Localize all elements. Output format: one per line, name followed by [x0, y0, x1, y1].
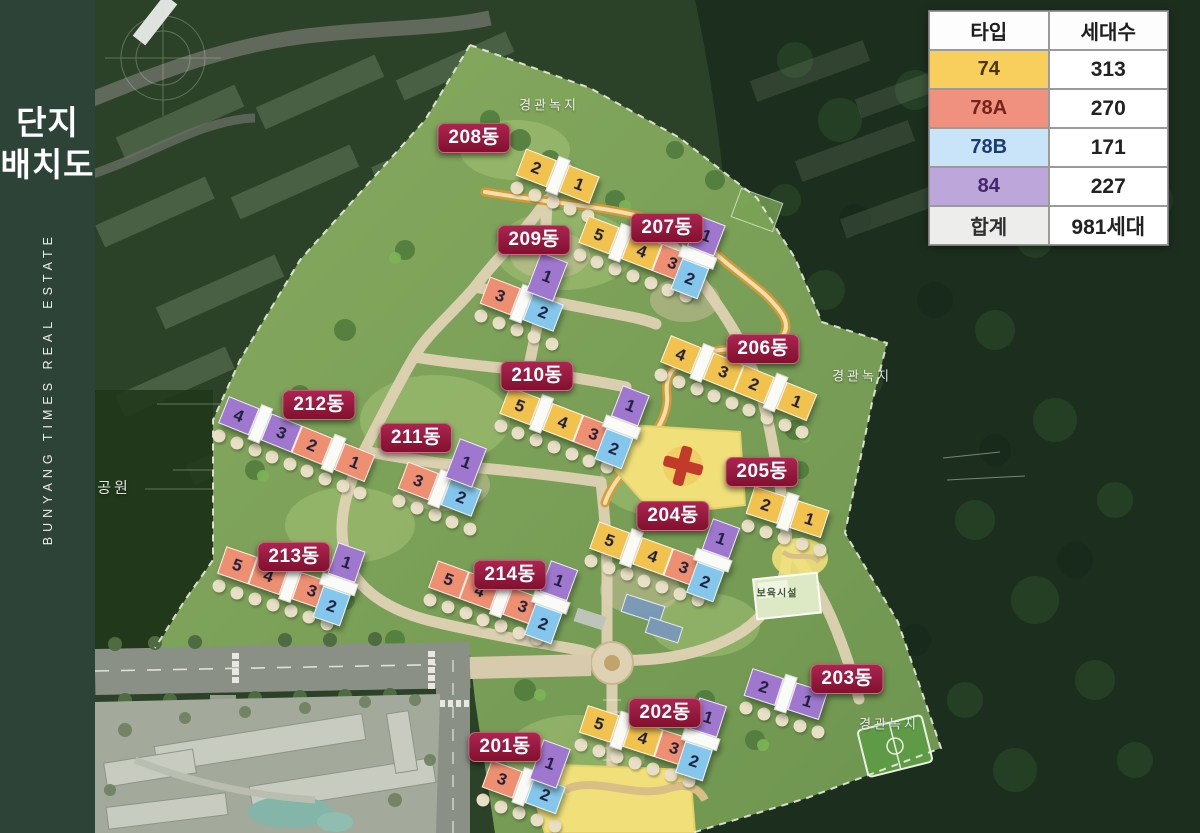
building-badge-206동: 206동 [726, 334, 799, 364]
tree [283, 458, 296, 471]
legend-count-cell: 270 [1049, 89, 1169, 128]
tree [814, 543, 827, 556]
tree [812, 725, 825, 738]
tree [494, 420, 507, 433]
tree [495, 800, 508, 813]
tree [620, 568, 633, 581]
tree [530, 813, 543, 826]
tree [284, 605, 297, 618]
area-label: 경관녹지 [832, 366, 892, 385]
tree [528, 189, 541, 202]
building-badge-213동: 213동 [257, 542, 330, 572]
tree [739, 702, 752, 715]
tree [778, 418, 791, 431]
tree [464, 522, 477, 535]
tree [492, 317, 505, 330]
tree [672, 376, 685, 389]
tree [266, 598, 279, 611]
tree [644, 276, 657, 289]
tree [248, 592, 261, 605]
legend-type-cell: 74 [929, 50, 1049, 89]
tree [428, 509, 441, 522]
building-badge-210동: 210동 [500, 361, 573, 391]
tree [230, 437, 243, 450]
area-label: 경관녹지 [859, 714, 919, 733]
tree [546, 196, 559, 209]
legend-header-count: 세대수 [1049, 11, 1169, 50]
tree [230, 586, 243, 599]
tree [629, 756, 642, 769]
legend-table-header: 타입 세대수 [929, 11, 1168, 50]
legend-row-합계: 합계981세대 [929, 206, 1168, 245]
area-label: 보육시설 [757, 585, 798, 600]
tree [796, 425, 809, 438]
tree [248, 444, 261, 457]
building-badge-203동: 203동 [810, 664, 883, 694]
tree [593, 745, 606, 758]
tree [743, 404, 756, 417]
building-badge-202동: 202동 [628, 698, 701, 728]
tree [564, 202, 577, 215]
legend-count-cell: 981세대 [1049, 206, 1169, 245]
tree [410, 502, 423, 515]
tree [336, 479, 349, 492]
building-badge-211동: 211동 [380, 423, 452, 453]
building-badge-204동: 204동 [636, 501, 709, 531]
sidebar: 단지 배치도 BUNYANG TIMES REAL ESTATE [0, 0, 95, 833]
area-label: 경관녹지 [519, 95, 579, 114]
legend-type-cell: 78B [929, 128, 1049, 167]
legend-count-cell: 227 [1049, 167, 1169, 206]
tree [656, 581, 669, 594]
legend-type-cell: 84 [929, 167, 1049, 206]
tree [301, 465, 314, 478]
tree [530, 434, 543, 447]
legend-header-type: 타입 [929, 11, 1049, 50]
tree [708, 390, 721, 403]
tree [565, 447, 578, 460]
page-title-line2: 배치도 [0, 146, 94, 183]
tree [690, 383, 703, 396]
legend-count-cell: 171 [1049, 128, 1169, 167]
tree [609, 263, 622, 276]
legend-row-74: 74313 [929, 50, 1168, 89]
tree [777, 532, 790, 545]
page-title-line1: 단지 [16, 104, 79, 141]
tree [354, 486, 367, 499]
legend-count-cell: 313 [1049, 50, 1169, 89]
legend-row-78A: 78A270 [929, 89, 1168, 128]
tree [319, 472, 332, 485]
brand-vertical-text: BUNYANG TIMES REAL ESTATE [41, 232, 55, 545]
building-badge-209동: 209동 [497, 225, 570, 255]
tree [513, 807, 526, 820]
tree [795, 538, 808, 551]
tree [674, 587, 687, 600]
tree [793, 720, 806, 733]
page-title: 단지 배치도 [0, 102, 95, 186]
tree [602, 561, 615, 574]
tree [626, 269, 639, 282]
tree [213, 429, 226, 442]
tree [266, 451, 279, 464]
tree [655, 368, 668, 381]
tree [528, 330, 541, 343]
tree [512, 427, 525, 440]
tree [759, 526, 772, 539]
tree [761, 411, 774, 424]
tree [511, 182, 524, 195]
tree [638, 574, 651, 587]
tree [757, 708, 770, 721]
tree [441, 600, 454, 613]
tree [573, 249, 586, 262]
area-label: 공원 [97, 477, 131, 498]
tree [591, 256, 604, 269]
tree [212, 580, 225, 593]
tree [547, 440, 560, 453]
tree [546, 337, 559, 350]
legend-table: 타입 세대수 7431378A27078B17184227합계981세대 [928, 10, 1169, 246]
tree [611, 751, 624, 764]
tree [584, 555, 597, 568]
building-badge-207동: 207동 [630, 213, 703, 243]
building-badge-201동: 201동 [468, 732, 541, 762]
building-badge-214동: 214동 [473, 560, 546, 590]
tree [725, 397, 738, 410]
legend-type-cell: 78A [929, 89, 1049, 128]
tree [459, 607, 472, 620]
building-badge-205동: 205동 [725, 457, 798, 487]
tree [583, 454, 596, 467]
building-badge-208동: 208동 [437, 123, 510, 153]
building-badge-212동: 212동 [282, 390, 355, 420]
legend-type-cell: 합계 [929, 206, 1049, 245]
tree [475, 310, 488, 323]
legend-row-84: 84227 [929, 167, 1168, 206]
tree [393, 495, 406, 508]
tree [575, 739, 588, 752]
tree [495, 620, 508, 633]
tree [446, 515, 459, 528]
tree [477, 613, 490, 626]
tree [423, 594, 436, 607]
site-plan-slide: 21208동54312207동321209동4321206동54312210동4… [0, 0, 1200, 833]
tree [477, 794, 490, 807]
tree [548, 820, 561, 833]
tree [647, 762, 660, 775]
tree [775, 714, 788, 727]
legend-row-78B: 78B171 [929, 128, 1168, 167]
tree [510, 324, 523, 337]
